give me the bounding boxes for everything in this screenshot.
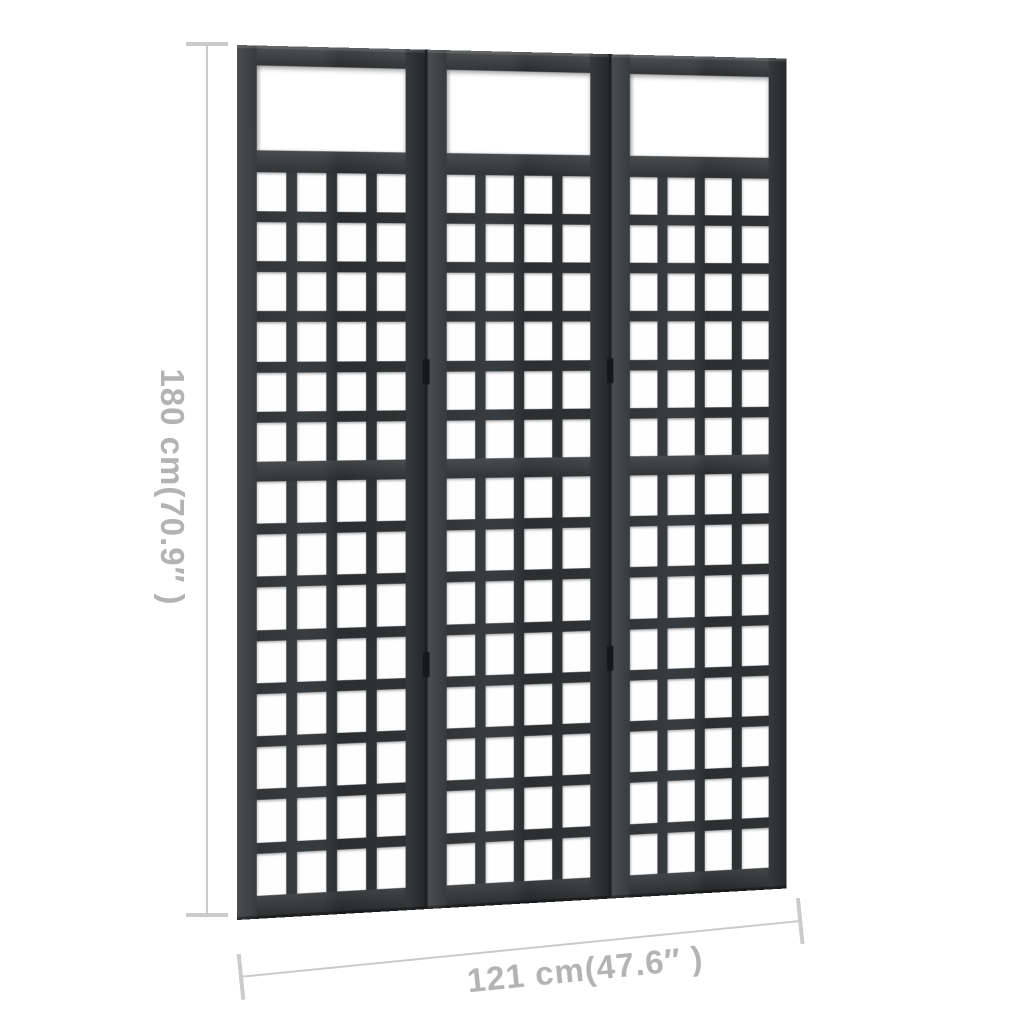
lattice-cell (742, 777, 769, 818)
lattice-cell (337, 173, 366, 212)
lattice-cell (337, 585, 366, 628)
lattice-cell (667, 576, 694, 617)
hinge (423, 359, 430, 385)
lattice-cell (524, 176, 552, 214)
lattice-cell (524, 224, 552, 262)
lattice-cell (705, 575, 732, 616)
lattice-cell (742, 524, 769, 565)
lattice-cell (524, 735, 552, 777)
lattice-cell (524, 787, 552, 829)
lattice-cell (337, 372, 366, 411)
lattice-cell (667, 226, 694, 264)
lattice-cell (742, 827, 769, 869)
lattice-cell (297, 797, 326, 840)
lattice-cell (562, 273, 590, 311)
lattice-cell (630, 177, 657, 215)
panel-lower-lattice (447, 476, 591, 885)
lattice-cell (297, 372, 326, 411)
lattice-cell (667, 474, 694, 515)
height-dimension-top-cap (186, 42, 228, 46)
panel-mid-rail (630, 454, 769, 475)
lattice-cell (562, 837, 590, 879)
lattice-cell (705, 417, 732, 455)
lattice-cell (524, 683, 552, 725)
lattice-cell (447, 175, 475, 214)
lattice-cell (742, 226, 769, 263)
lattice-cell (447, 582, 475, 624)
divider-panel-2 (425, 50, 609, 910)
lattice-cell (486, 581, 514, 623)
lattice-cell (486, 224, 514, 262)
lattice-cell (337, 223, 366, 262)
lattice-cell (257, 693, 287, 736)
lattice-cell (742, 369, 769, 406)
lattice-cell (667, 177, 694, 215)
lattice-cell (257, 587, 287, 630)
lattice-cell (705, 178, 732, 216)
lattice-cell (667, 831, 694, 873)
lattice-cell (562, 225, 590, 263)
lattice-cell (524, 419, 552, 457)
width-dimension-label: 121 cm(47.6″ ) (465, 939, 705, 1000)
lattice-cell (630, 577, 657, 618)
lattice-cell (667, 678, 694, 720)
lattice-cell (705, 829, 732, 871)
lattice-cell (257, 746, 287, 789)
lattice-cell (705, 322, 732, 359)
product-image: 180 cm(70.9″ ) 121 cm(47.6″ ) (0, 0, 1024, 1024)
lattice-cell (524, 477, 552, 519)
lattice-cell (447, 738, 475, 781)
lattice-cell (257, 172, 287, 211)
lattice-cell (630, 225, 657, 263)
panel-mid-rail (257, 459, 406, 481)
lattice-cell (524, 273, 552, 311)
lattice-cell (447, 322, 475, 360)
lattice-cell (667, 274, 694, 312)
lattice-cell (257, 852, 287, 896)
lattice-cell (562, 476, 590, 517)
panel-top-window (447, 70, 591, 155)
lattice-cell (562, 579, 590, 621)
lattice-cell (257, 372, 287, 411)
room-divider (237, 45, 786, 920)
hinge (423, 651, 430, 677)
lattice-cell (337, 421, 366, 460)
lattice-cell (667, 418, 694, 456)
lattice-cell (337, 743, 366, 786)
lattice-cell (447, 420, 475, 459)
lattice-cell (486, 420, 514, 459)
lattice-cell (524, 371, 552, 409)
lattice-cell (486, 737, 514, 779)
lattice-cell (447, 686, 475, 728)
lattice-cell (297, 533, 326, 576)
lattice-cell (630, 526, 657, 567)
lattice-cell (297, 223, 326, 262)
divider-panel-3 (609, 54, 787, 899)
lattice-cell (377, 322, 406, 361)
lattice-cell (257, 534, 287, 577)
height-dimension-bottom-cap (186, 913, 228, 917)
lattice-cell (486, 371, 514, 409)
lattice-cell (705, 779, 732, 821)
lattice-cell (377, 846, 406, 889)
panel-upper-lattice (447, 175, 591, 459)
lattice-cell (486, 633, 514, 675)
lattice-cell (337, 848, 366, 891)
lattice-cell (486, 789, 514, 832)
panel-upper-lattice (257, 172, 406, 461)
lattice-cell (377, 794, 406, 837)
lattice-cell (297, 850, 326, 894)
lattice-cell (630, 274, 657, 312)
lattice-cell (705, 626, 732, 667)
lattice-cell (524, 322, 552, 360)
lattice-cell (377, 372, 406, 411)
lattice-cell (630, 782, 657, 824)
width-dimension-line: 121 cm(47.6″ ) (239, 920, 802, 978)
lattice-cell (705, 728, 732, 770)
lattice-cell (742, 625, 769, 666)
lattice-cell (447, 273, 475, 311)
lattice-cell (377, 584, 406, 626)
lattice-cell (297, 422, 326, 461)
lattice-cell (524, 580, 552, 622)
lattice-cell (377, 741, 406, 784)
lattice-cell (667, 370, 694, 408)
hinge (607, 358, 613, 383)
lattice-cell (486, 840, 514, 883)
lattice-cell (524, 528, 552, 570)
lattice-cell (337, 532, 366, 574)
lattice-cell (667, 525, 694, 566)
lattice-cell (630, 680, 657, 722)
lattice-cell (667, 322, 694, 360)
lattice-cell (447, 790, 475, 833)
lattice-cell (377, 479, 406, 521)
lattice-cell (337, 480, 366, 522)
width-dimension-left-cap (237, 954, 246, 1000)
height-dimension-line (206, 44, 208, 915)
lattice-cell (562, 682, 590, 724)
lattice-cell (667, 729, 694, 771)
lattice-cell (257, 640, 287, 683)
lattice-cell (337, 322, 366, 361)
lattice-cell (562, 528, 590, 570)
lattice-cell (630, 833, 657, 875)
lattice-cell (705, 370, 732, 408)
lattice-cell (742, 726, 769, 767)
panel-lower-lattice (257, 479, 406, 896)
lattice-cell (630, 731, 657, 773)
lattice-cell (297, 322, 326, 361)
lattice-cell (257, 222, 287, 261)
lattice-cell (705, 226, 732, 264)
lattice-cell (297, 692, 326, 735)
lattice-cell (447, 530, 475, 572)
lattice-cell (297, 744, 326, 787)
lattice-cell (297, 173, 326, 212)
lattice-cell (297, 480, 326, 522)
panel-window-rail (630, 156, 769, 179)
lattice-cell (562, 631, 590, 673)
lattice-cell (705, 525, 732, 566)
lattice-cell (562, 176, 590, 214)
lattice-cell (630, 322, 657, 360)
lattice-cell (562, 322, 590, 360)
panel-top-window (257, 65, 406, 152)
lattice-cell (337, 795, 366, 838)
lattice-cell (742, 322, 769, 359)
lattice-cell (447, 634, 475, 676)
lattice-cell (447, 478, 475, 520)
lattice-cell (667, 627, 694, 668)
lattice-cell (377, 636, 406, 679)
lattice-cell (630, 629, 657, 671)
lattice-cell (447, 371, 475, 410)
lattice-cell (447, 842, 475, 885)
width-dimension-right-cap (796, 898, 805, 944)
lattice-cell (337, 273, 366, 312)
lattice-cell (742, 274, 769, 311)
lattice-cell (486, 175, 514, 213)
lattice-cell (297, 586, 326, 629)
lattice-cell (486, 322, 514, 360)
lattice-cell (742, 473, 769, 514)
lattice-cell (742, 676, 769, 717)
lattice-cell (447, 224, 475, 263)
panel-upper-lattice (630, 177, 769, 456)
panel-mid-rail (447, 457, 591, 479)
lattice-cell (742, 417, 769, 455)
divider-panel-1 (237, 45, 425, 920)
lattice-cell (377, 223, 406, 262)
lattice-cell (337, 690, 366, 733)
lattice-cell (562, 785, 590, 827)
lattice-cell (630, 475, 657, 516)
lattice-cell (377, 689, 406, 732)
panel-lower-lattice (630, 473, 769, 875)
lattice-cell (562, 370, 590, 408)
lattice-cell (257, 481, 287, 524)
lattice-cell (630, 418, 657, 456)
lattice-cell (524, 632, 552, 674)
lattice-cell (562, 734, 590, 776)
height-dimension-label: 180 cm(70.9″ ) (153, 368, 191, 605)
hinge (607, 645, 613, 670)
lattice-cell (486, 273, 514, 311)
lattice-cell (705, 274, 732, 311)
lattice-cell (667, 780, 694, 822)
lattice-cell (377, 532, 406, 574)
lattice-cell (742, 574, 769, 615)
lattice-cell (257, 322, 287, 361)
panel-window-rail (447, 153, 591, 176)
lattice-cell (486, 685, 514, 727)
lattice-cell (705, 677, 732, 718)
lattice-cell (705, 474, 732, 515)
lattice-cell (297, 272, 326, 311)
lattice-cell (524, 839, 552, 882)
lattice-cell (377, 421, 406, 460)
lattice-cell (257, 422, 287, 461)
lattice-cell (377, 273, 406, 312)
lattice-cell (377, 174, 406, 213)
panel-top-window (630, 74, 769, 158)
lattice-cell (257, 799, 287, 843)
lattice-cell (486, 477, 514, 519)
lattice-cell (257, 272, 287, 311)
lattice-cell (337, 638, 366, 681)
lattice-cell (562, 419, 590, 457)
lattice-cell (630, 370, 657, 408)
lattice-cell (742, 178, 769, 216)
panel-window-rail (257, 150, 406, 174)
lattice-cell (297, 639, 326, 682)
lattice-cell (486, 529, 514, 571)
